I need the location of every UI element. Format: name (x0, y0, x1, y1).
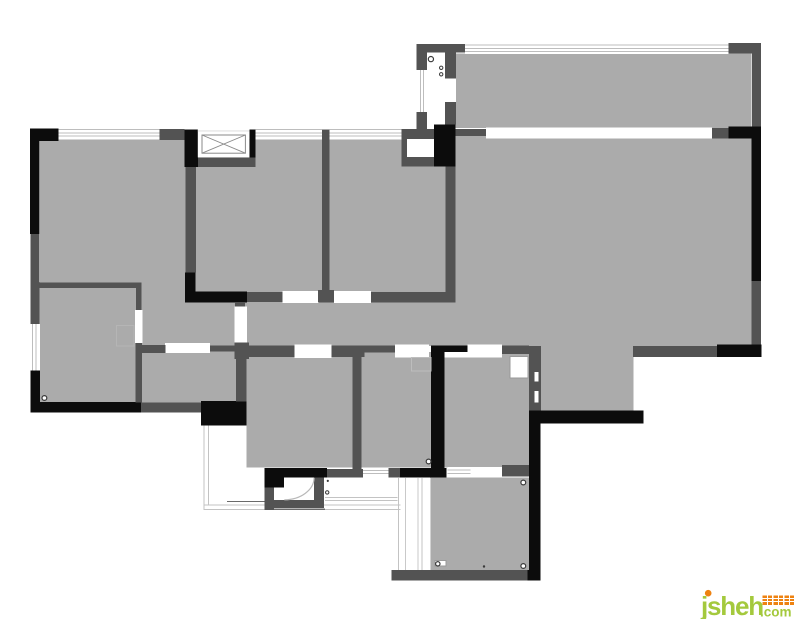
svg-text:.com: .com (760, 605, 792, 620)
